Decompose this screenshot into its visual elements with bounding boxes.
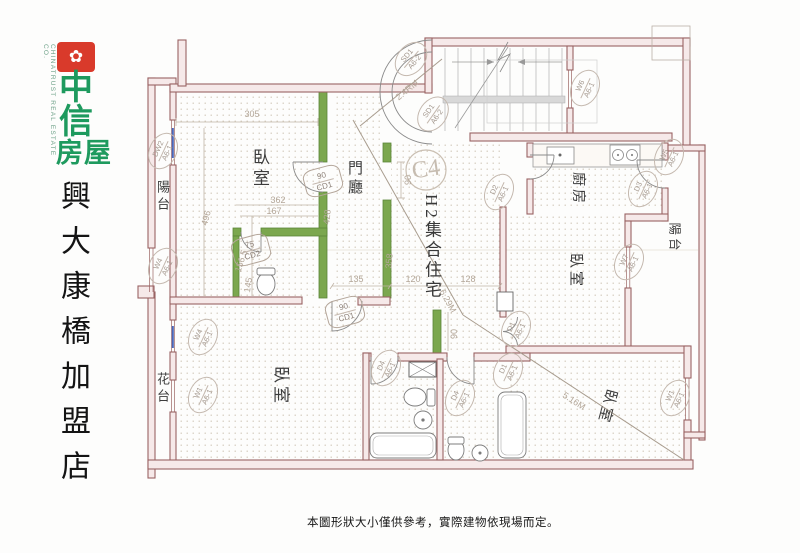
toilet-icon — [257, 273, 275, 295]
dimension: 305 — [244, 109, 259, 119]
stove-icon — [610, 145, 640, 165]
shaft-icon — [497, 292, 513, 311]
bathtub-icon — [370, 433, 436, 458]
room-label-kitchen: 廚房 — [569, 172, 589, 206]
dimension: 90 — [403, 175, 413, 185]
dimension: 90 — [449, 329, 459, 339]
dimension: 120 — [405, 274, 420, 284]
dimension: 135 — [348, 274, 363, 284]
room-label-balcony-right: 陽台 — [667, 222, 686, 253]
dimension: 145 — [242, 277, 254, 293]
toilet-icon — [404, 388, 426, 406]
dimension: 128 — [460, 274, 475, 284]
dimension: 358 — [383, 253, 394, 269]
disclaimer-text: 本圖形狀大小僅供參考，實際建物依現場而定。 — [307, 514, 559, 530]
unit-type-title: H2集合住宅 — [419, 194, 444, 301]
room-label-planter: 花台 — [153, 372, 172, 406]
stair-landing — [443, 96, 565, 103]
room-label-entry-hall: 門廳 — [344, 160, 365, 198]
room-label-bedroom-top-left: 臥室 — [247, 148, 272, 190]
bathtub-icon — [498, 392, 526, 458]
room-label-bedroom-bottom-left: 臥室 — [271, 366, 296, 406]
dimension: 362 — [270, 195, 285, 205]
scanned-floorplan-page: CHINATRUST REAL ESTATE CO. ✿ 中 信 房屋 興大康橋… — [0, 0, 800, 553]
dimension: 428 — [321, 209, 332, 225]
dimension: 167 — [266, 206, 281, 216]
room-label-balcony-left: 陽台 — [153, 180, 172, 214]
room-label-bedroom-right: 臥室 — [567, 253, 588, 289]
unit-code: C4 — [410, 155, 442, 186]
floor-plan-drawing — [0, 0, 800, 553]
